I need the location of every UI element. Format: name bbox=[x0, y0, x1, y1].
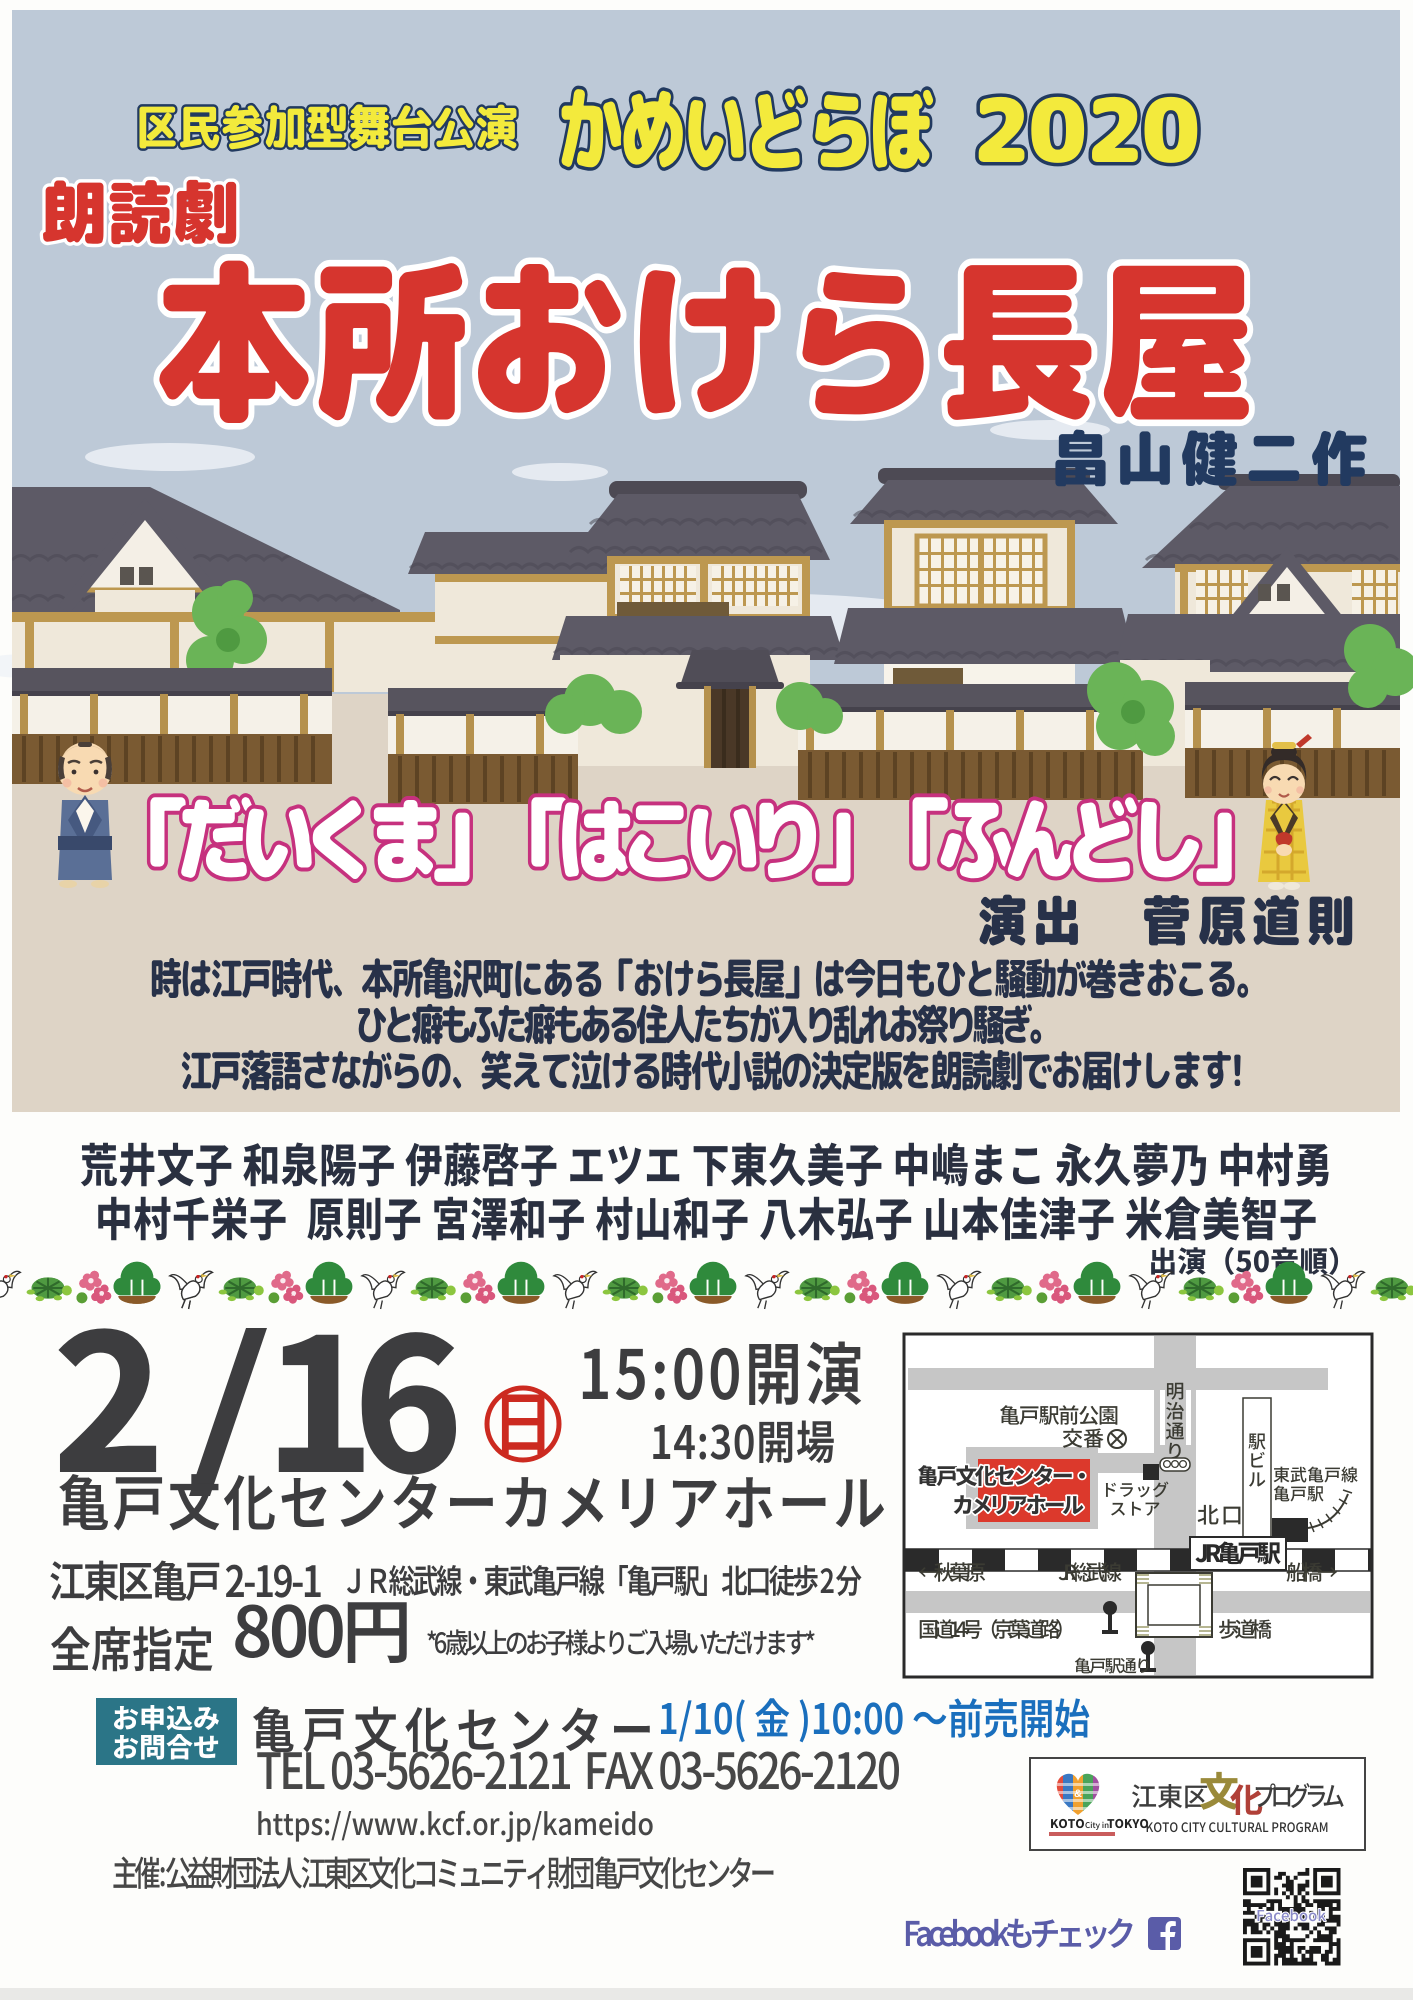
svg-text:&: & bbox=[1074, 1788, 1082, 1800]
